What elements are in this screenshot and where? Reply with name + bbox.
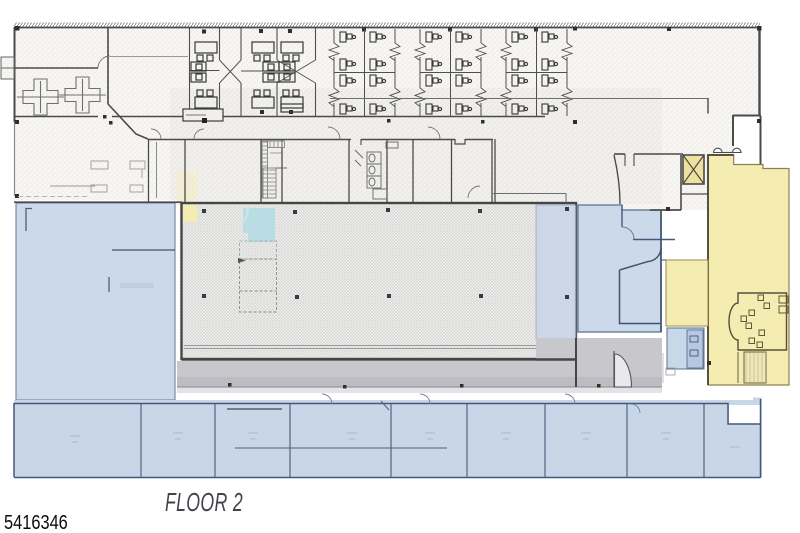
svg-text:FLOOR 2: FLOOR 2 [165, 488, 243, 517]
svg-text:xxx: xxx [250, 436, 256, 441]
svg-text:xxx: xxx [663, 436, 669, 441]
svg-text:xxxxx: xxxxx [173, 430, 183, 435]
svg-text:xxx: xxx [175, 436, 181, 441]
svg-text:5416346: 5416346 [4, 510, 68, 533]
svg-text:xxxxx: xxxxx [581, 430, 591, 435]
svg-text:xxxxx: xxxxx [347, 430, 357, 435]
svg-text:xxx: xxx [503, 436, 509, 441]
svg-text:xxx: xxx [427, 436, 433, 441]
svg-text:xxxxx: xxxxx [501, 430, 511, 435]
svg-text:xxxxx: xxxxx [661, 430, 671, 435]
svg-text:xxxxx: xxxxx [730, 444, 740, 449]
svg-text:xxxxx: xxxxx [425, 430, 435, 435]
svg-text:xxx: xxx [72, 439, 78, 444]
svg-text:xxxxx: xxxxx [248, 430, 258, 435]
svg-text:xxxxx: xxxxx [70, 433, 80, 438]
svg-text:xxx: xxx [583, 436, 589, 441]
svg-text:xxx: xxx [349, 436, 355, 441]
